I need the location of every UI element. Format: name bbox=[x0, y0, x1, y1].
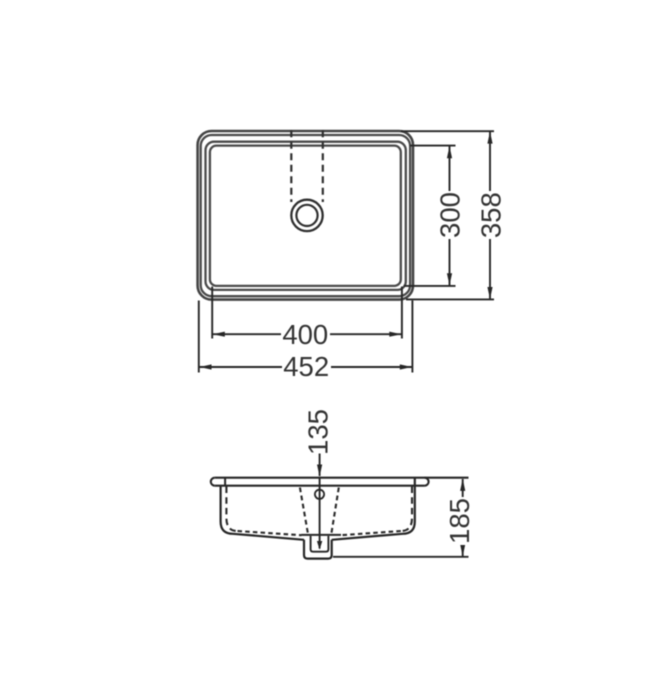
svg-text:400: 400 bbox=[282, 319, 328, 350]
svg-text:452: 452 bbox=[283, 351, 329, 382]
svg-text:135: 135 bbox=[302, 409, 333, 455]
svg-text:358: 358 bbox=[475, 192, 506, 238]
svg-text:185: 185 bbox=[444, 498, 475, 544]
svg-text:300: 300 bbox=[434, 192, 465, 238]
